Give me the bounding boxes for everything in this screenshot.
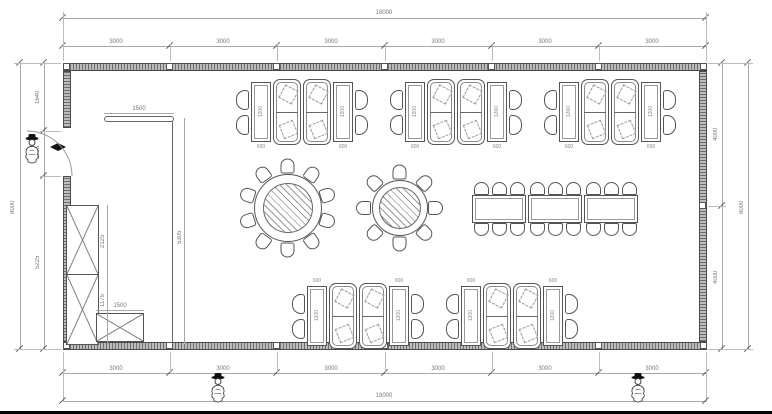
rect-dining-table: 1200600 bbox=[251, 82, 271, 142]
seat-cushion bbox=[587, 120, 607, 140]
chair bbox=[474, 223, 489, 236]
table-width-dim: 600 bbox=[467, 278, 475, 284]
rect-dining-table: 1200600 bbox=[543, 286, 563, 346]
lazy-susan bbox=[379, 187, 421, 229]
dim-line-right-overall bbox=[748, 63, 749, 349]
seat-cushion bbox=[519, 324, 539, 344]
chair bbox=[663, 90, 676, 110]
booth-sofa bbox=[457, 79, 485, 145]
chair bbox=[663, 115, 676, 135]
rect-dining-table: 1200600 bbox=[487, 82, 507, 142]
booth-sofa bbox=[513, 283, 541, 349]
cabinet-upper bbox=[66, 205, 99, 275]
table-width-dim: 600 bbox=[565, 144, 573, 150]
table-length-dim: 1200 bbox=[648, 106, 654, 117]
dim-line-bottom-overall bbox=[63, 401, 706, 402]
seat-cushion bbox=[617, 120, 637, 140]
banquet-unit bbox=[528, 181, 582, 237]
chair bbox=[509, 115, 522, 135]
booth-sofa bbox=[273, 79, 301, 145]
chair bbox=[565, 294, 578, 314]
chair bbox=[566, 182, 581, 195]
dim-label: 18000 bbox=[344, 10, 424, 16]
extension-line bbox=[708, 206, 726, 207]
booth-sofa bbox=[581, 79, 609, 145]
dim-label: 18000 bbox=[344, 393, 424, 399]
chair-pair bbox=[355, 90, 368, 135]
dim-label: 3000 bbox=[96, 366, 136, 372]
chair bbox=[544, 115, 557, 135]
sideboard bbox=[96, 313, 144, 342]
extension-line bbox=[170, 352, 171, 374]
extension-line bbox=[40, 131, 61, 132]
chair bbox=[530, 182, 545, 195]
column-post bbox=[699, 202, 706, 209]
person-figure bbox=[632, 373, 645, 402]
table-length-dim: 1200 bbox=[340, 106, 346, 117]
dim-label: 3000 bbox=[311, 366, 351, 372]
banquet-unit bbox=[584, 181, 638, 237]
chair-pair bbox=[663, 90, 676, 135]
chair-row bbox=[528, 223, 582, 237]
dim-label: 3000 bbox=[418, 366, 458, 372]
chair bbox=[565, 319, 578, 339]
extension-line bbox=[277, 44, 278, 61]
rect-dining-table: 1200600 bbox=[333, 82, 353, 142]
booth-dining-group: 1200600 1200600 bbox=[292, 283, 428, 349]
extension-line bbox=[63, 12, 64, 61]
chair bbox=[281, 243, 295, 258]
table-top bbox=[584, 195, 638, 223]
x-cross bbox=[67, 275, 98, 344]
dim-label: 5305 bbox=[177, 220, 183, 254]
column-post bbox=[381, 63, 388, 70]
person-figure bbox=[212, 373, 225, 402]
chair bbox=[428, 201, 443, 215]
round-table-8-seats bbox=[356, 164, 444, 252]
table-length-dim: 1200 bbox=[412, 106, 418, 117]
seat-cushion bbox=[463, 120, 483, 140]
banquet-unit bbox=[472, 181, 526, 237]
dim-label: 3000 bbox=[311, 39, 351, 45]
chair bbox=[586, 182, 601, 195]
chair-pair bbox=[446, 294, 459, 339]
extension-line bbox=[63, 352, 64, 402]
chair bbox=[492, 182, 507, 195]
seat-cushion bbox=[586, 84, 606, 104]
banquet-table-row bbox=[472, 181, 638, 237]
chair bbox=[604, 223, 619, 236]
chair-row bbox=[472, 181, 526, 195]
dim-label: 1500 bbox=[96, 303, 144, 309]
table-length-dim: 1200 bbox=[566, 106, 572, 117]
chair bbox=[446, 294, 459, 314]
seat-cushion bbox=[279, 120, 299, 140]
booth-dining-group: 1200600 1200600 bbox=[236, 79, 372, 145]
extension-line bbox=[385, 44, 386, 61]
column-post bbox=[700, 342, 707, 349]
dim-label: 5225 bbox=[35, 248, 41, 276]
column-post bbox=[63, 63, 70, 70]
chair-pair bbox=[390, 90, 403, 135]
chair bbox=[604, 182, 619, 195]
extension-line bbox=[14, 63, 61, 64]
dim-label: 3000 bbox=[525, 366, 565, 372]
chair bbox=[236, 115, 249, 135]
seat-cushion bbox=[462, 84, 482, 104]
x-cross bbox=[67, 206, 98, 274]
seat-cushion bbox=[335, 324, 355, 344]
chair bbox=[318, 212, 337, 230]
dim-tick bbox=[702, 397, 709, 404]
chair bbox=[281, 159, 295, 174]
booth-dining-group: 1200600 1200600 bbox=[544, 79, 680, 145]
extension-line bbox=[385, 352, 386, 374]
column-post bbox=[273, 63, 280, 70]
seat-cushion bbox=[334, 288, 354, 308]
dim-line-partition bbox=[184, 118, 185, 344]
chair-pair bbox=[292, 294, 305, 339]
seat-cushion bbox=[309, 120, 329, 140]
chair-pair bbox=[544, 90, 557, 135]
booth-sofa bbox=[359, 283, 387, 349]
door-leaf-triangle bbox=[58, 143, 66, 151]
counter-partition bbox=[104, 116, 174, 122]
dim-label: 4000 bbox=[713, 120, 719, 148]
table-length-dim: 1200 bbox=[494, 106, 500, 117]
chair-row bbox=[528, 181, 582, 195]
chair bbox=[622, 223, 637, 236]
dim-label: 3000 bbox=[525, 39, 565, 45]
chair bbox=[393, 237, 407, 252]
chair bbox=[586, 223, 601, 236]
chair-row bbox=[584, 223, 638, 237]
chair bbox=[390, 115, 403, 135]
dim-line-counter bbox=[104, 113, 174, 114]
seat-cushion bbox=[308, 84, 328, 104]
table-width-dim: 600 bbox=[549, 278, 557, 284]
extension-line bbox=[599, 44, 600, 61]
rect-dining-table: 1200600 bbox=[405, 82, 425, 142]
chair-pair bbox=[236, 90, 249, 135]
dim-line-left-overall bbox=[20, 63, 21, 349]
table-top bbox=[472, 195, 526, 223]
lazy-susan bbox=[263, 183, 313, 233]
extension-line bbox=[706, 12, 707, 61]
table-top bbox=[528, 195, 582, 223]
dim-line-left-segments bbox=[44, 63, 45, 349]
chair bbox=[390, 90, 403, 110]
column-post bbox=[166, 63, 173, 70]
extension-line bbox=[492, 44, 493, 61]
chair bbox=[510, 182, 525, 195]
extension-line bbox=[708, 349, 753, 350]
partition-line bbox=[172, 121, 173, 344]
rect-dining-table: 1200600 bbox=[389, 286, 409, 346]
table-length-dim: 1200 bbox=[396, 310, 402, 321]
chair bbox=[411, 294, 424, 314]
extension-line bbox=[708, 63, 753, 64]
floor-plan-canvas: 18000 3000 3000 3000 3000 3000 3000 3000… bbox=[0, 0, 772, 414]
chair bbox=[548, 182, 563, 195]
dim-label: 3000 bbox=[632, 39, 672, 45]
chair bbox=[510, 223, 525, 236]
extension-line bbox=[706, 352, 707, 402]
chair-row bbox=[472, 223, 526, 237]
extension-line bbox=[599, 352, 600, 374]
table-width-dim: 600 bbox=[647, 144, 655, 150]
seat-cushion bbox=[518, 288, 538, 308]
column-post bbox=[595, 63, 602, 70]
dim-label: 4000 bbox=[713, 263, 719, 291]
dim-label: 8000 bbox=[739, 192, 745, 222]
booth-dining-group: 1200600 1200600 bbox=[390, 79, 526, 145]
dim-label: 3000 bbox=[203, 366, 243, 372]
seat-cushion bbox=[433, 120, 453, 140]
table-width-dim: 600 bbox=[257, 144, 265, 150]
table-width-dim: 600 bbox=[411, 144, 419, 150]
dim-line-cabinet bbox=[107, 205, 108, 345]
table-width-dim: 600 bbox=[313, 278, 321, 284]
dim-label: 8000 bbox=[10, 192, 16, 222]
table-length-dim: 1200 bbox=[550, 310, 556, 321]
extension-line bbox=[14, 349, 61, 350]
extension-line bbox=[492, 352, 493, 374]
chair bbox=[509, 90, 522, 110]
chair bbox=[446, 319, 459, 339]
chair-pair bbox=[411, 294, 424, 339]
seat-cushion bbox=[432, 84, 452, 104]
dim-label: 3000 bbox=[632, 366, 672, 372]
chair bbox=[474, 182, 489, 195]
dim-label: 1135 bbox=[35, 139, 41, 167]
dim-line-top-overall bbox=[63, 18, 706, 19]
column-post bbox=[700, 63, 707, 70]
dim-label: 1640 bbox=[35, 83, 41, 111]
door-swing-arc bbox=[27, 131, 72, 176]
dim-label: 3000 bbox=[203, 39, 243, 45]
table-length-dim: 1200 bbox=[468, 310, 474, 321]
booth-sofa bbox=[611, 79, 639, 145]
door-leaf-triangle bbox=[50, 143, 58, 151]
booth-dining-group: 1200600 1200600 bbox=[446, 283, 582, 349]
chair bbox=[548, 223, 563, 236]
dim-line-sideboard bbox=[96, 310, 144, 311]
chair-pair bbox=[565, 294, 578, 339]
column-post bbox=[273, 342, 280, 349]
wall-left-upper bbox=[63, 71, 71, 128]
extension-line bbox=[277, 352, 278, 374]
booth-sofa bbox=[483, 283, 511, 349]
booth-sofa bbox=[329, 283, 357, 349]
extension-line bbox=[170, 44, 171, 61]
dim-label: 1500 bbox=[112, 106, 166, 112]
chair bbox=[292, 319, 305, 339]
chair bbox=[492, 223, 507, 236]
table-width-dim: 600 bbox=[339, 144, 347, 150]
extension-line bbox=[40, 176, 61, 177]
cabinet-lower bbox=[66, 274, 99, 345]
chair bbox=[356, 201, 371, 215]
chair bbox=[355, 90, 368, 110]
rect-dining-table: 1200600 bbox=[307, 286, 327, 346]
dim-label: 2125 bbox=[100, 226, 106, 256]
door-leaf bbox=[50, 143, 66, 151]
seat-cushion bbox=[616, 84, 636, 104]
chair bbox=[393, 165, 407, 180]
chair bbox=[622, 182, 637, 195]
chair bbox=[292, 294, 305, 314]
table-length-dim: 1200 bbox=[314, 310, 320, 321]
booth-sofa bbox=[303, 79, 331, 145]
chair-pair bbox=[509, 90, 522, 135]
seat-cushion bbox=[365, 324, 385, 344]
rect-dining-table: 1200600 bbox=[461, 286, 481, 346]
seat-cushion bbox=[488, 288, 508, 308]
table-width-dim: 600 bbox=[493, 144, 501, 150]
seat-cushion bbox=[489, 324, 509, 344]
chair-row bbox=[584, 181, 638, 195]
chair bbox=[530, 223, 545, 236]
table-width-dim: 600 bbox=[395, 278, 403, 284]
dim-label: 3000 bbox=[96, 39, 136, 45]
chair bbox=[411, 319, 424, 339]
chair bbox=[566, 223, 581, 236]
x-cross bbox=[97, 314, 143, 341]
column-post bbox=[488, 63, 495, 70]
booth-sofa bbox=[427, 79, 455, 145]
chair bbox=[544, 90, 557, 110]
chair bbox=[355, 115, 368, 135]
round-table-10-seats bbox=[236, 156, 340, 260]
chair bbox=[236, 90, 249, 110]
column-post bbox=[595, 342, 602, 349]
table-length-dim: 1200 bbox=[258, 106, 264, 117]
seat-cushion bbox=[364, 288, 384, 308]
rect-dining-table: 1200600 bbox=[559, 82, 579, 142]
rect-dining-table: 1200600 bbox=[641, 82, 661, 142]
dim-label: 3000 bbox=[418, 39, 458, 45]
seat-cushion bbox=[278, 84, 298, 104]
chair bbox=[318, 186, 337, 204]
